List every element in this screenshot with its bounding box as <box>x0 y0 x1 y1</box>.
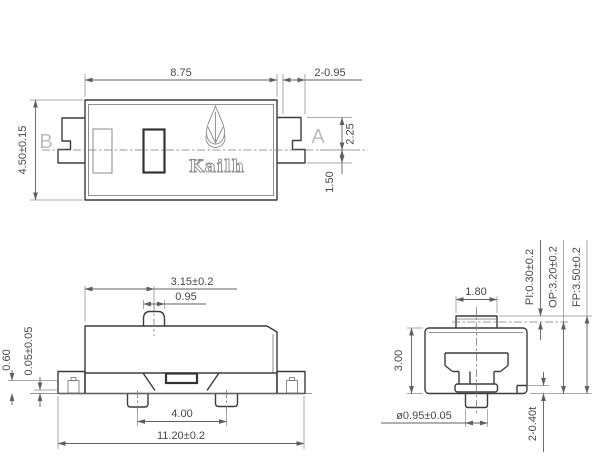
top-view-part-outline <box>42 100 368 200</box>
side-view-center-slot <box>166 374 197 384</box>
dim-side-overall-width: 11.20±0.2 <box>157 430 205 442</box>
dim-top-tab-slots: 2-0.95 <box>314 67 345 79</box>
section-label-b: B <box>39 131 52 153</box>
dim-end-plunger-width: 1.80 <box>465 286 486 298</box>
dim-top-tab-upper: 2.25 <box>345 123 357 144</box>
dim-top-body-width: 8.75 <box>170 67 191 79</box>
end-view: 1.80 3.00 ø0.95±0.05 PI:0.30±0.2 OP:3.20… <box>381 240 592 452</box>
dim-end-peg-diameter: ø0.95±0.05 <box>396 410 452 422</box>
dim-top-body-height: 4.50±0.15 <box>17 126 29 175</box>
side-view-part-outline <box>30 303 312 412</box>
dim-top-tab-lower: 1.50 <box>324 171 336 192</box>
top-view-slot-center <box>144 130 165 173</box>
side-view-dimensions: 3.15±0.2 0.95 0.60 0.05±0.05 4.00 11.20±… <box>1 276 304 449</box>
side-view: 3.15±0.2 0.95 0.60 0.05±0.05 4.00 11.20±… <box>1 276 312 449</box>
dim-end-operating-position: OP:3.20±0.2 <box>548 246 560 308</box>
dim-side-plunger-width: 0.95 <box>175 291 196 303</box>
kailh-logo: Kailh <box>189 106 245 177</box>
dim-side-feet-pitch: 4.00 <box>171 408 192 420</box>
technical-drawing: Kailh 8.75 2-0.95 4.50±0.15 2.25 1.50 <box>0 0 600 472</box>
side-view-terminal-left <box>68 381 79 394</box>
dim-end-free-position: FP:3.50±0.2 <box>571 247 583 307</box>
dim-side-plunger-offset: 3.15±0.2 <box>171 276 214 288</box>
top-view: Kailh 8.75 2-0.95 4.50±0.15 2.25 1.50 <box>17 67 368 200</box>
top-view-dimensions: 8.75 2-0.95 4.50±0.15 2.25 1.50 <box>17 67 362 200</box>
brand-logo-text: Kailh <box>189 157 245 177</box>
drawing-canvas: Kailh 8.75 2-0.95 4.50±0.15 2.25 1.50 <box>0 0 600 472</box>
section-label-a: A <box>311 126 325 148</box>
dim-side-coplanarity: 0.05±0.05 <box>23 327 35 376</box>
end-view-dimensions: 1.80 3.00 ø0.95±0.05 PI:0.30±0.2 OP:3.20… <box>381 240 592 452</box>
top-view-slot-left <box>93 129 112 173</box>
dim-end-pretravel: PI:0.30±0.2 <box>524 249 536 305</box>
top-view-tab-a <box>277 118 305 164</box>
top-view-tab-b <box>58 118 85 163</box>
dim-end-body-height: 3.00 <box>393 350 405 371</box>
dim-side-terminal-height: 0.60 <box>1 349 13 370</box>
side-view-terminal-right <box>287 381 298 394</box>
dim-end-terminal-thickness: 2-0.40t <box>527 407 539 441</box>
end-view-part-outline <box>425 307 568 413</box>
